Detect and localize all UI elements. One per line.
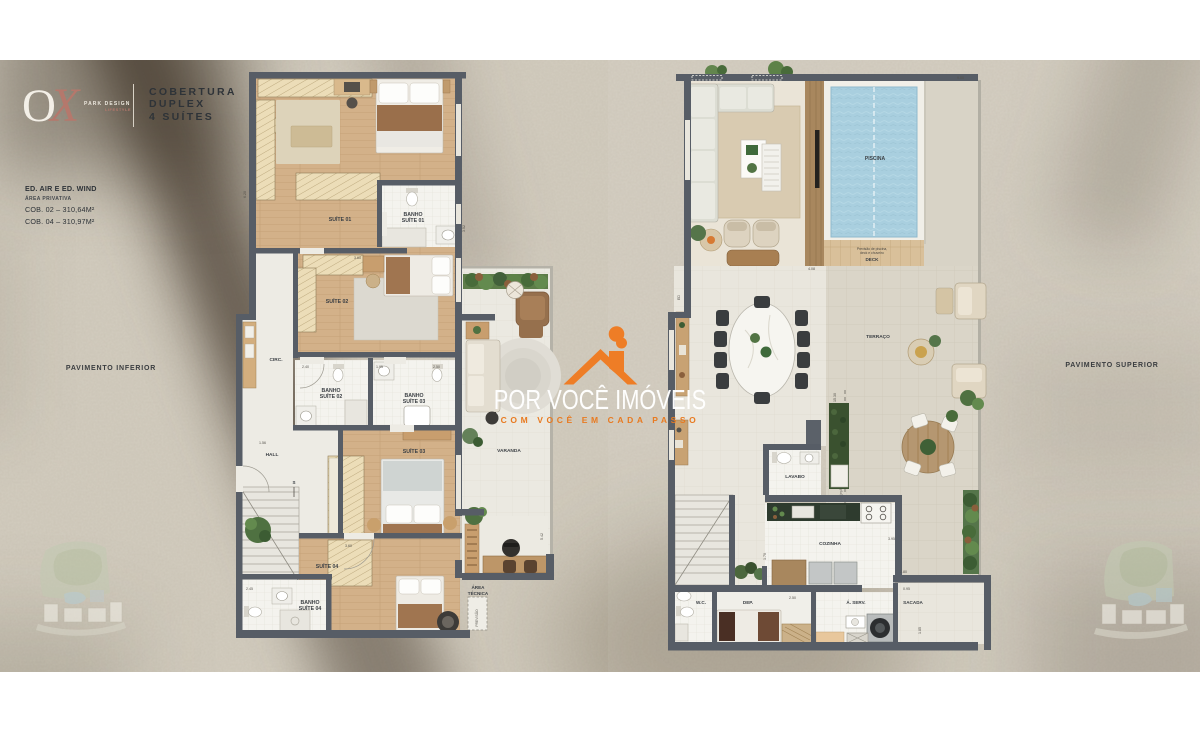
svg-text:DEP.: DEP. — [743, 600, 753, 605]
svg-text:ÁREA: ÁREA — [471, 584, 485, 590]
svg-text:5.42: 5.42 — [540, 533, 544, 540]
svg-text:9.00: 9.00 — [957, 76, 964, 80]
svg-text:TÉCNICA: TÉCNICA — [468, 589, 489, 596]
svg-text:3.60: 3.60 — [345, 544, 352, 548]
svg-text:Á. SERV.: Á. SERV. — [846, 599, 865, 605]
svg-text:1.70: 1.70 — [763, 553, 767, 560]
svg-text:W.C.: W.C. — [696, 600, 706, 605]
svg-text:2.45: 2.45 — [246, 587, 253, 591]
svg-text:SUÍTE 01: SUÍTE 01 — [329, 215, 352, 223]
svg-text:1.85: 1.85 — [918, 627, 922, 634]
svg-text:PREVISÃO: PREVISÃO — [474, 609, 479, 627]
svg-text:DECK: DECK — [865, 257, 879, 262]
svg-text:deck e chuveiro: deck e chuveiro — [860, 251, 884, 255]
svg-text:TERRAÇO: TERRAÇO — [866, 334, 890, 340]
svg-text:4.08: 4.08 — [808, 267, 815, 271]
svg-text:SUÍTE 01: SUÍTE 01 — [402, 216, 425, 224]
svg-text:SACADA: SACADA — [903, 600, 923, 605]
svg-text:3.95: 3.95 — [888, 537, 895, 541]
svg-text:VARANDA: VARANDA — [497, 448, 521, 454]
svg-text:SUÍTE 02: SUÍTE 02 — [326, 297, 349, 305]
svg-text:2.50: 2.50 — [433, 365, 440, 369]
svg-text:6.20: 6.20 — [243, 191, 247, 198]
svg-text:SUÍTE 03: SUÍTE 03 — [403, 447, 426, 455]
svg-text:SUÍTE 02: SUÍTE 02 — [320, 392, 343, 400]
svg-text:SUÍTE 03: SUÍTE 03 — [403, 397, 426, 405]
svg-text:3.60: 3.60 — [354, 256, 361, 260]
svg-text:1.95: 1.95 — [376, 365, 383, 369]
svg-text:1.56: 1.56 — [259, 441, 266, 445]
svg-text:15.30: 15.30 — [833, 393, 837, 402]
svg-text:SUÍTE 04: SUÍTE 04 — [316, 562, 339, 570]
svg-text:3.52: 3.52 — [462, 225, 466, 232]
svg-text:COZINHA: COZINHA — [819, 541, 841, 547]
svg-text:PISCINA: PISCINA — [865, 156, 886, 162]
svg-text:0.95: 0.95 — [903, 587, 910, 591]
svg-text:ED: ED — [677, 295, 681, 300]
svg-text:CIRC.: CIRC. — [269, 357, 282, 363]
svg-text:2.40: 2.40 — [302, 365, 309, 369]
svg-text:2.80: 2.80 — [900, 570, 907, 574]
svg-text:2.50: 2.50 — [789, 596, 796, 600]
svg-text:SUÍTE 04: SUÍTE 04 — [299, 604, 322, 612]
svg-text:LAVABO: LAVABO — [785, 474, 805, 480]
svg-text:HALL: HALL — [266, 452, 279, 458]
svg-text:S: S — [292, 480, 295, 485]
